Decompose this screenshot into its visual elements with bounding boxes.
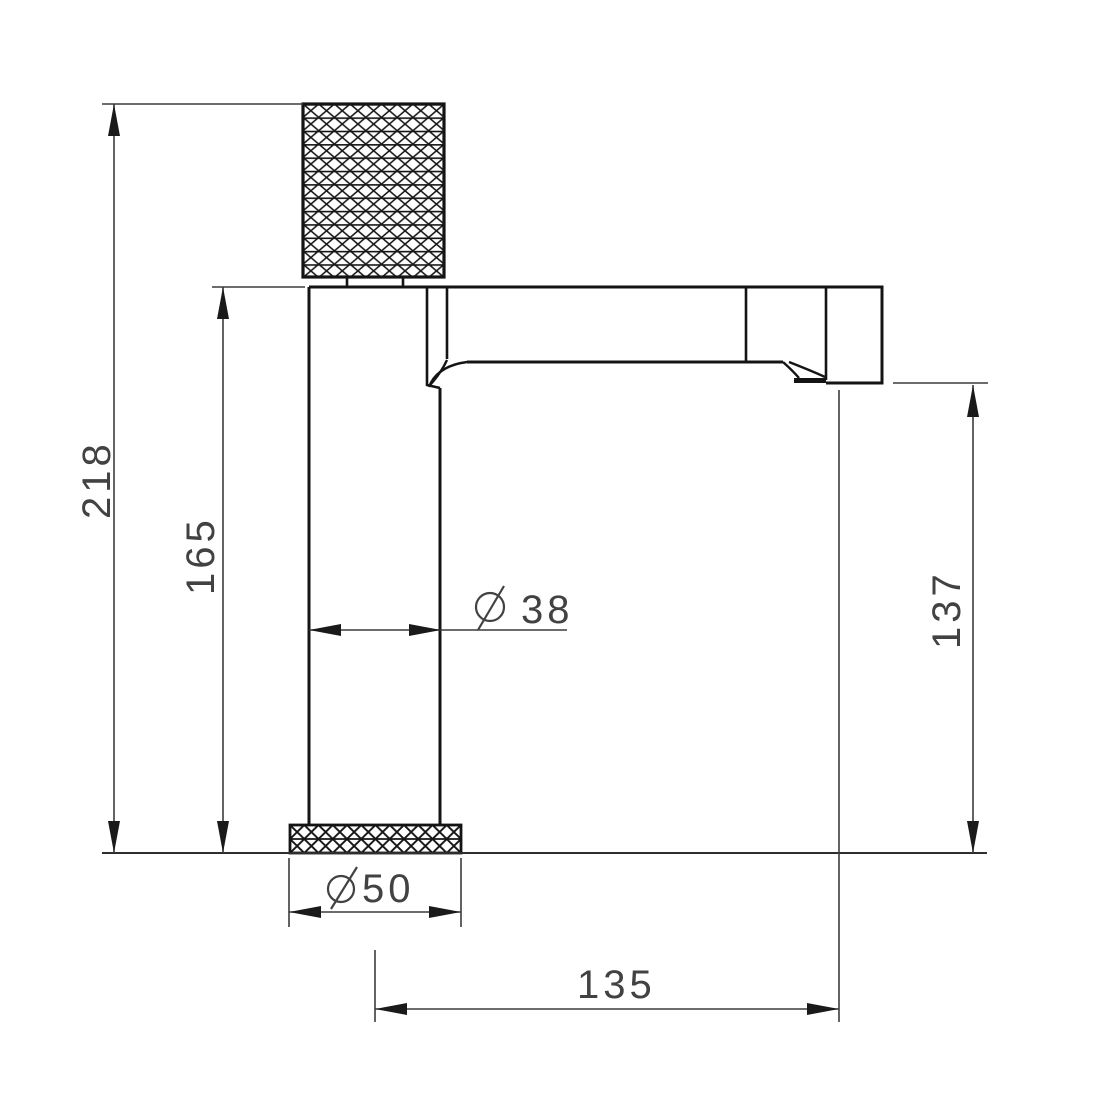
arrowhead-up bbox=[108, 104, 120, 136]
diameter-symbol bbox=[328, 867, 357, 909]
dim-label-base-diameter: 50 bbox=[362, 867, 415, 911]
dim-label-body-height: 165 bbox=[179, 516, 223, 595]
arrowhead-up bbox=[967, 385, 979, 417]
arrowhead-right bbox=[409, 624, 441, 636]
dim-label-overall-height: 218 bbox=[75, 440, 119, 519]
dim-base-diameter: 50 bbox=[289, 858, 461, 927]
body-spout-fillet-outer bbox=[429, 362, 467, 387]
dim-body-height: 165 bbox=[179, 287, 305, 853]
arrowhead-down bbox=[217, 821, 229, 853]
arrowhead-right bbox=[429, 906, 461, 918]
diameter-symbol bbox=[476, 586, 504, 630]
technical-drawing-page: 218 165 137 38 bbox=[0, 0, 1100, 1100]
dim-label-outlet-height: 137 bbox=[925, 570, 969, 649]
spout-outline bbox=[309, 287, 882, 383]
dim-overall-height: 218 bbox=[75, 104, 303, 853]
faucet-object bbox=[102, 104, 987, 853]
dim-label-body-diameter: 38 bbox=[521, 588, 574, 632]
spout-underside-right-fillet-inner bbox=[789, 362, 825, 377]
dimensions: 218 165 137 38 bbox=[75, 104, 988, 1022]
arrowhead-left bbox=[375, 1003, 407, 1015]
dim-spout-reach: 135 bbox=[375, 390, 839, 1022]
arrowhead-left bbox=[289, 906, 321, 918]
faucet-technical-drawing: 218 165 137 38 bbox=[0, 0, 1100, 1100]
arrowhead-down bbox=[108, 821, 120, 853]
dim-outlet-height: 137 bbox=[893, 383, 988, 853]
arrowhead-right bbox=[807, 1003, 839, 1015]
body-spout-fillet-inner bbox=[430, 360, 447, 385]
arrowhead-up bbox=[217, 287, 229, 319]
arrowhead-down bbox=[967, 821, 979, 853]
arrowhead-left bbox=[309, 624, 341, 636]
dim-label-spout-reach: 135 bbox=[577, 963, 656, 1007]
knurled-handle bbox=[303, 104, 444, 277]
